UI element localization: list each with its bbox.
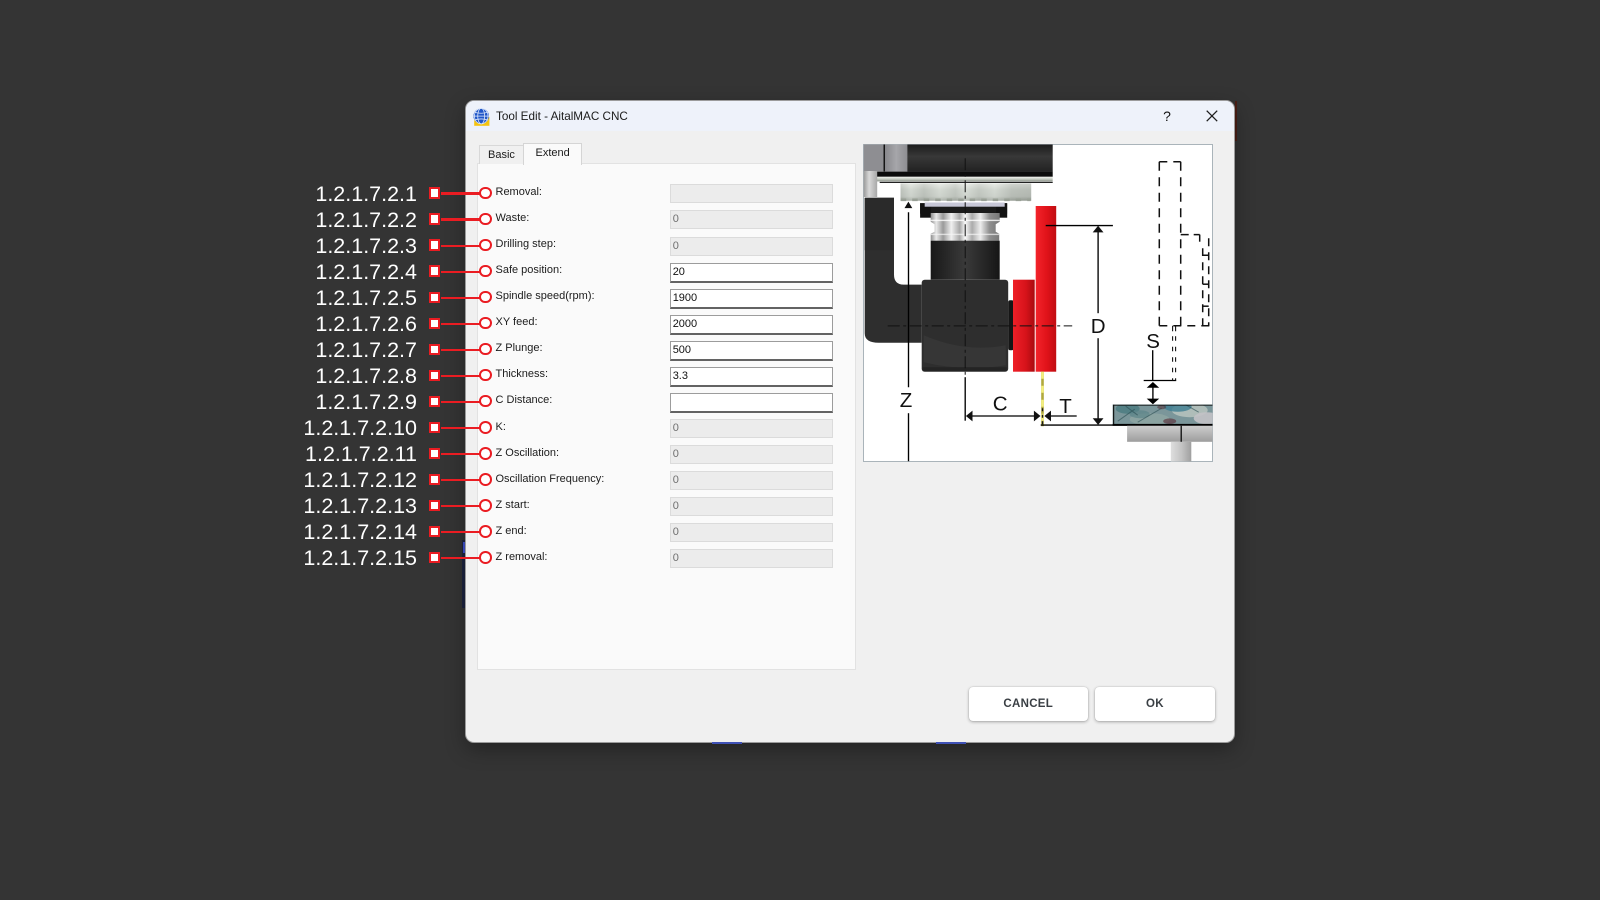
svg-text:D: D <box>1091 315 1106 338</box>
svg-text:S: S <box>1146 330 1160 353</box>
svg-text:C: C <box>993 392 1008 415</box>
svg-text:Z: Z <box>900 389 913 412</box>
svg-text:T: T <box>1059 395 1072 418</box>
